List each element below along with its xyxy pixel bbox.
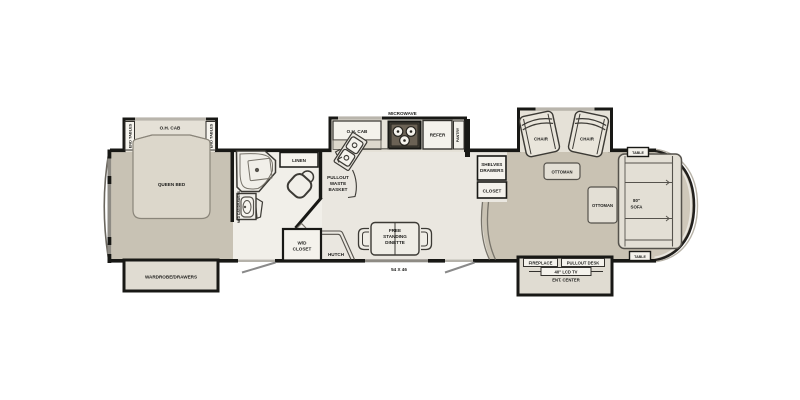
svg-text:HUTCH: HUTCH [328,252,345,257]
svg-text:TABLE: TABLE [632,151,644,155]
svg-text:O.H. CAB: O.H. CAB [160,126,181,131]
svg-text:PULLOUT: PULLOUT [327,175,349,180]
svg-text:FIREPLACE: FIREPLACE [529,261,553,266]
svg-text:CLOSET: CLOSET [293,247,312,252]
svg-text:CHAIR: CHAIR [580,137,595,142]
svg-text:DINETTE: DINETTE [385,240,405,245]
svg-text:BASKET: BASKET [329,187,348,192]
svg-text:SOFA: SOFA [631,205,644,210]
svg-text:MED CAB/DRAWERS: MED CAB/DRAWERS [237,191,241,223]
svg-text:W/D: W/D [298,241,308,246]
svg-text:WASTE: WASTE [330,181,346,186]
svg-text:LINEN: LINEN [292,158,306,163]
svg-text:80": 80" [633,198,640,203]
svg-text:PANTRY: PANTRY [456,127,460,142]
svg-text:40" LCD TV: 40" LCD TV [555,270,578,275]
svg-text:MICROWAVE: MICROWAVE [388,111,417,116]
svg-text:54 X 46: 54 X 46 [391,267,407,272]
svg-text:WARDROBE/DRAWERS: WARDROBE/DRAWERS [145,275,197,280]
svg-text:FREE: FREE [389,228,401,233]
svg-text:SHELVES: SHELVES [481,162,502,167]
svg-text:QUEEN BED: QUEEN BED [158,182,186,187]
svg-text:CHAIR: CHAIR [534,137,549,142]
svg-text:DRAWERS: DRAWERS [480,168,503,173]
svg-text:TABLE: TABLE [634,255,646,259]
svg-text:PULLOUT DESK: PULLOUT DESK [567,261,600,266]
svg-text:OTTOMAN: OTTOMAN [592,203,613,208]
svg-text:CLOSET: CLOSET [483,189,502,194]
svg-text:OTTOMAN: OTTOMAN [551,170,572,175]
svg-text:ENT. CENTER: ENT. CENTER [552,278,579,283]
svg-text:STANDING: STANDING [383,234,407,239]
svg-text:END TABLES: END TABLES [128,123,133,148]
svg-text:O.H. CAB: O.H. CAB [347,129,368,134]
svg-text:REFER: REFER [430,133,446,138]
